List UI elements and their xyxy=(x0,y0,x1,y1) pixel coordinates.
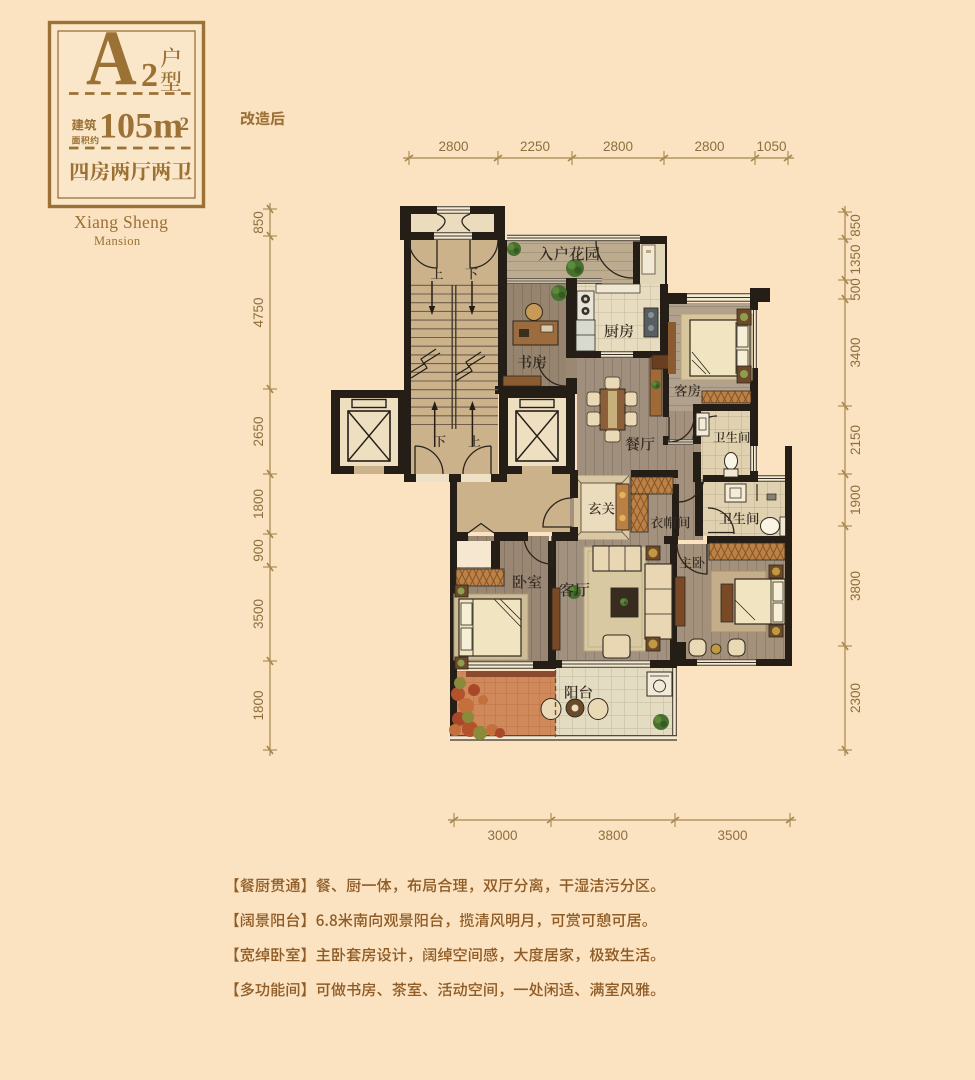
svg-text:A: A xyxy=(86,16,137,102)
svg-text:1050: 1050 xyxy=(756,139,786,154)
svg-text:1900: 1900 xyxy=(848,485,863,515)
svg-text:900: 900 xyxy=(251,539,266,562)
svg-text:3400: 3400 xyxy=(848,337,863,367)
svg-text:Mansion: Mansion xyxy=(94,234,141,248)
svg-text:3000: 3000 xyxy=(487,828,517,843)
svg-text:3500: 3500 xyxy=(717,828,747,843)
svg-text:2: 2 xyxy=(180,114,190,135)
svg-text:850: 850 xyxy=(251,211,266,234)
svg-text:2800: 2800 xyxy=(603,139,633,154)
svg-text:2800: 2800 xyxy=(694,139,724,154)
svg-text:3800: 3800 xyxy=(848,571,863,601)
svg-text:850: 850 xyxy=(848,214,863,237)
svg-text:1350: 1350 xyxy=(848,244,863,274)
svg-text:105m: 105m xyxy=(99,106,183,146)
svg-text:1800: 1800 xyxy=(251,489,266,519)
svg-text:2800: 2800 xyxy=(438,139,468,154)
svg-text:500: 500 xyxy=(848,278,863,301)
svg-text:2250: 2250 xyxy=(520,139,550,154)
svg-text:3800: 3800 xyxy=(598,828,628,843)
svg-text:3500: 3500 xyxy=(251,599,266,629)
svg-text:2: 2 xyxy=(141,57,158,94)
svg-text:Xiang Sheng: Xiang Sheng xyxy=(74,212,168,232)
svg-text:2300: 2300 xyxy=(848,683,863,713)
svg-text:4750: 4750 xyxy=(251,297,266,327)
svg-text:1800: 1800 xyxy=(251,690,266,720)
svg-text:2150: 2150 xyxy=(848,425,863,455)
svg-text:2650: 2650 xyxy=(251,416,266,446)
